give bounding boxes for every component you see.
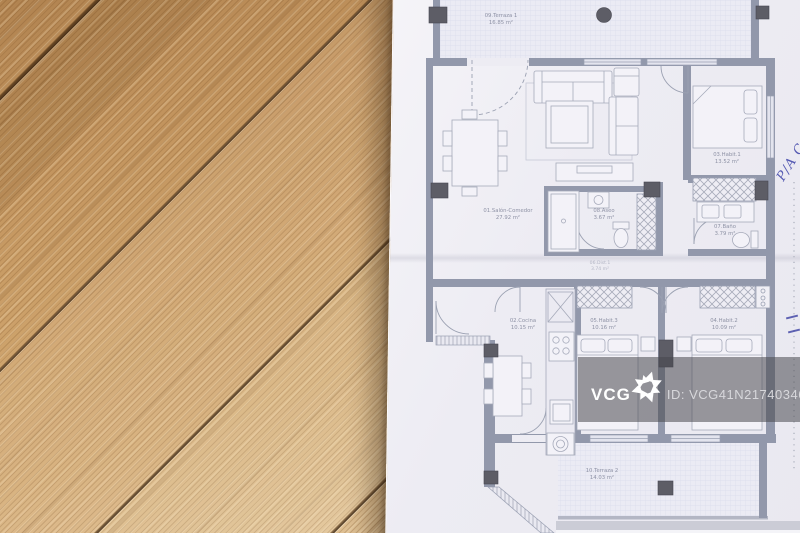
living-room-furniture (443, 68, 639, 196)
room-label: 02.Cocina (510, 318, 536, 324)
terrace-2-floor (488, 443, 800, 533)
room-label: 05.Habit.3 (590, 318, 618, 324)
room-area: 3.74 m² (591, 266, 609, 272)
room-label: 06.Dist.1 (590, 260, 611, 266)
aseo-fixtures (548, 191, 629, 252)
watermark-id-text: ID: VCG41N2174034697 (667, 387, 800, 402)
terrace-1-floor (440, 0, 751, 58)
room-area: 3.79 m² (715, 230, 736, 237)
plank-gap (0, 0, 240, 158)
room-area: 27.92 m² (496, 214, 520, 221)
room-area: 10.16 m² (592, 324, 616, 331)
room-label: 08.Aseo (593, 208, 614, 214)
room-label: 01.Salón-Comedor (483, 207, 533, 214)
room-label: 03.Habit.1 (713, 152, 741, 158)
kitchen-fixtures (484, 289, 575, 455)
room-area: 10.09 m² (712, 324, 736, 331)
floorplan-drawing: 09.Terraza 1 16.85 m² 01.Salón-Comedor 2… (388, 0, 800, 533)
photo-floorplan-on-wood: 09.Terraza 1 16.85 m² 01.Salón-Comedor 2… (0, 0, 800, 533)
watermark-bar: VCG ID: VCG41N2174034697 (578, 357, 800, 422)
room-area: 16.85 m² (489, 19, 513, 26)
room-label: 10.Terraza 2 (586, 468, 619, 474)
watermark-content: VCG ID: VCG41N2174034697 (578, 377, 800, 412)
room-area: 3.67 m² (594, 214, 615, 221)
room-label: 07.Baño (714, 224, 736, 230)
room-area: 10.15 m² (511, 324, 535, 331)
room-area: 14.03 m² (590, 474, 614, 481)
room-label: 09.Terraza 1 (485, 13, 518, 19)
room-label: 04.Habit.2 (710, 318, 738, 324)
vcg-logo-text: VCG (591, 385, 631, 405)
vcg-starburst-icon (629, 367, 665, 412)
room-area: 13.52 m² (715, 158, 739, 165)
